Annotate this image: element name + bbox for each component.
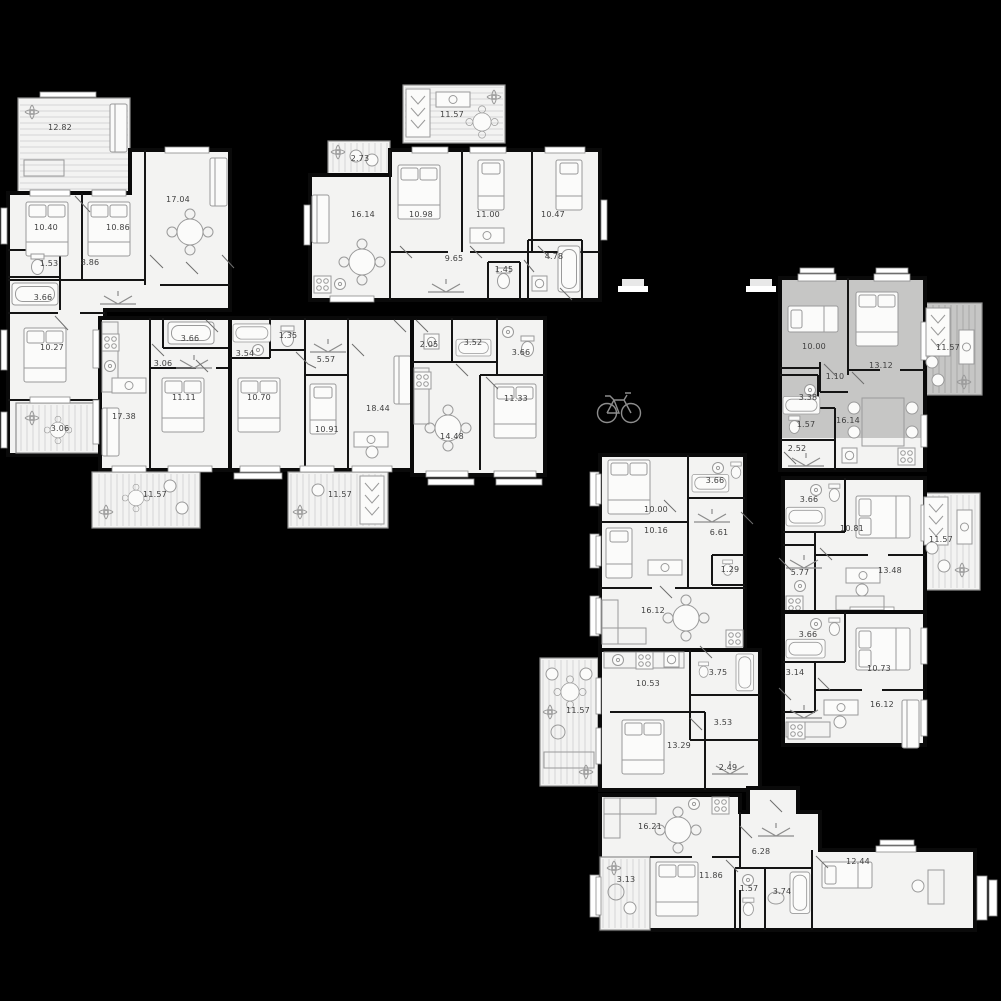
room-area-label: 14.48 [440,432,464,441]
room-area-label: 8.86 [81,258,100,267]
room-area-label: 2.05 [420,340,439,349]
room-area-label: 10.73 [867,664,891,673]
room-area-label: 3.66 [181,334,200,343]
room-area-label: 10.16 [644,526,668,535]
room-area-label: 3.66 [799,630,818,639]
room-area-label: 1.10 [826,372,845,381]
room-area-label: 3.66 [800,495,819,504]
terrace-area-label: 12.82 [48,123,72,132]
room-area-label: 10.40 [34,223,58,232]
balcony-area-label: 3.13 [617,875,636,884]
room-area-label: 17.04 [166,195,190,204]
room-area-label: 12.44 [846,857,870,866]
room-area-label: 17.38 [112,412,136,421]
room-area-label: 10.27 [40,343,64,352]
room-area-label: 3.66 [512,348,531,357]
room-area-label: 10.00 [644,505,668,514]
room-area-label: 3.14 [786,668,805,677]
room-area-label: 3.66 [34,293,53,302]
room-area-label: 16.21 [638,822,662,831]
room-area-label: 10.91 [315,425,339,434]
room-area-label: 5.77 [791,568,810,577]
room-area-label: 11.86 [699,871,723,880]
room-area-label: 10.81 [840,524,864,533]
room-area-label: 11.33 [504,394,528,403]
room-area-label: 3.54 [236,349,255,358]
balcony-area-label: 11.57 [328,490,352,499]
room-area-label: 13.29 [667,741,691,750]
room-area-label: 9.65 [445,254,464,263]
floor-plan-canvas: 12.82 10.40 10.86 17.04 1.53 8.86 3.66 1… [0,0,1001,1001]
room-area-label: 3.53 [714,718,733,727]
room-area-label: 3.75 [709,668,728,677]
room-area-label: 11.00 [476,210,500,219]
room-area-label: 6.28 [752,847,771,856]
room-area-label: 3.74 [773,887,792,896]
terrace-area-label: 11.57 [440,110,464,119]
balcony-area-label: 2.73 [351,154,370,163]
room-area-label: 4.78 [545,252,564,261]
room-area-label: 10.86 [106,223,130,232]
vent-shaft-icon [618,279,648,292]
floor-plan-svg: 12.82 10.40 10.86 17.04 1.53 8.86 3.66 1… [0,0,1001,1001]
room-area-label: 3.38 [799,393,818,402]
room-area-label: 2.52 [788,444,807,453]
room-area-label: 16.14 [836,416,860,425]
room-area-label: 1.57 [797,420,816,429]
room-area-label: 16.12 [641,606,665,615]
room-area-label: 10.47 [541,210,565,219]
apartment-unit-center-upper[interactable]: 10.00 3.66 10.16 6.61 1.29 16.12 [590,455,745,650]
vent-shaft-icon [746,279,776,292]
room-area-label: 13.48 [878,566,902,575]
room-area-label: 13.12 [869,361,893,370]
room-area-label: 3.52 [464,338,483,347]
room-area-label: 16.12 [870,700,894,709]
room-area-label: 1.57 [740,884,759,893]
room-area-label: 1.35 [279,331,298,340]
room-area-label: 1.29 [721,565,740,574]
room-area-label: 3.06 [154,359,173,368]
room-area-label: 16.14 [351,210,375,219]
room-area-label: 11.11 [172,393,196,402]
room-area-label: 5.57 [317,355,336,364]
room-area-label: 1.53 [40,259,59,268]
room-area-label: 2.49 [719,763,738,772]
apartment-unit-right-lower[interactable]: 3.66 10.73 3.14 16.12 [783,612,927,748]
windows [590,472,601,636]
room-area-label: 6.61 [710,528,729,537]
room-area-label: 10.70 [247,393,271,402]
balcony-area-label: 11.57 [566,706,590,715]
balcony-area-label: 11.57 [143,490,167,499]
room-area-label: 10.53 [636,679,660,688]
room-area-label: 10.00 [802,342,826,351]
room-area-label: 18.44 [366,404,390,413]
loggia-area-label: 3.06 [51,424,70,433]
room-area-label: 3.66 [706,476,725,485]
room-area-label: 1.45 [495,265,514,274]
room-area-label: 10.98 [409,210,433,219]
apartment-unit-middle-right[interactable]: 2.05 3.52 3.66 11.33 14.48 [412,318,545,485]
balcony-area-label: 11.57 [936,343,960,352]
apartment-unit-center-lower[interactable]: 10.53 3.75 3.53 13.29 2.49 11.57 [540,650,760,790]
balcony-area-label: 11.57 [929,535,953,544]
